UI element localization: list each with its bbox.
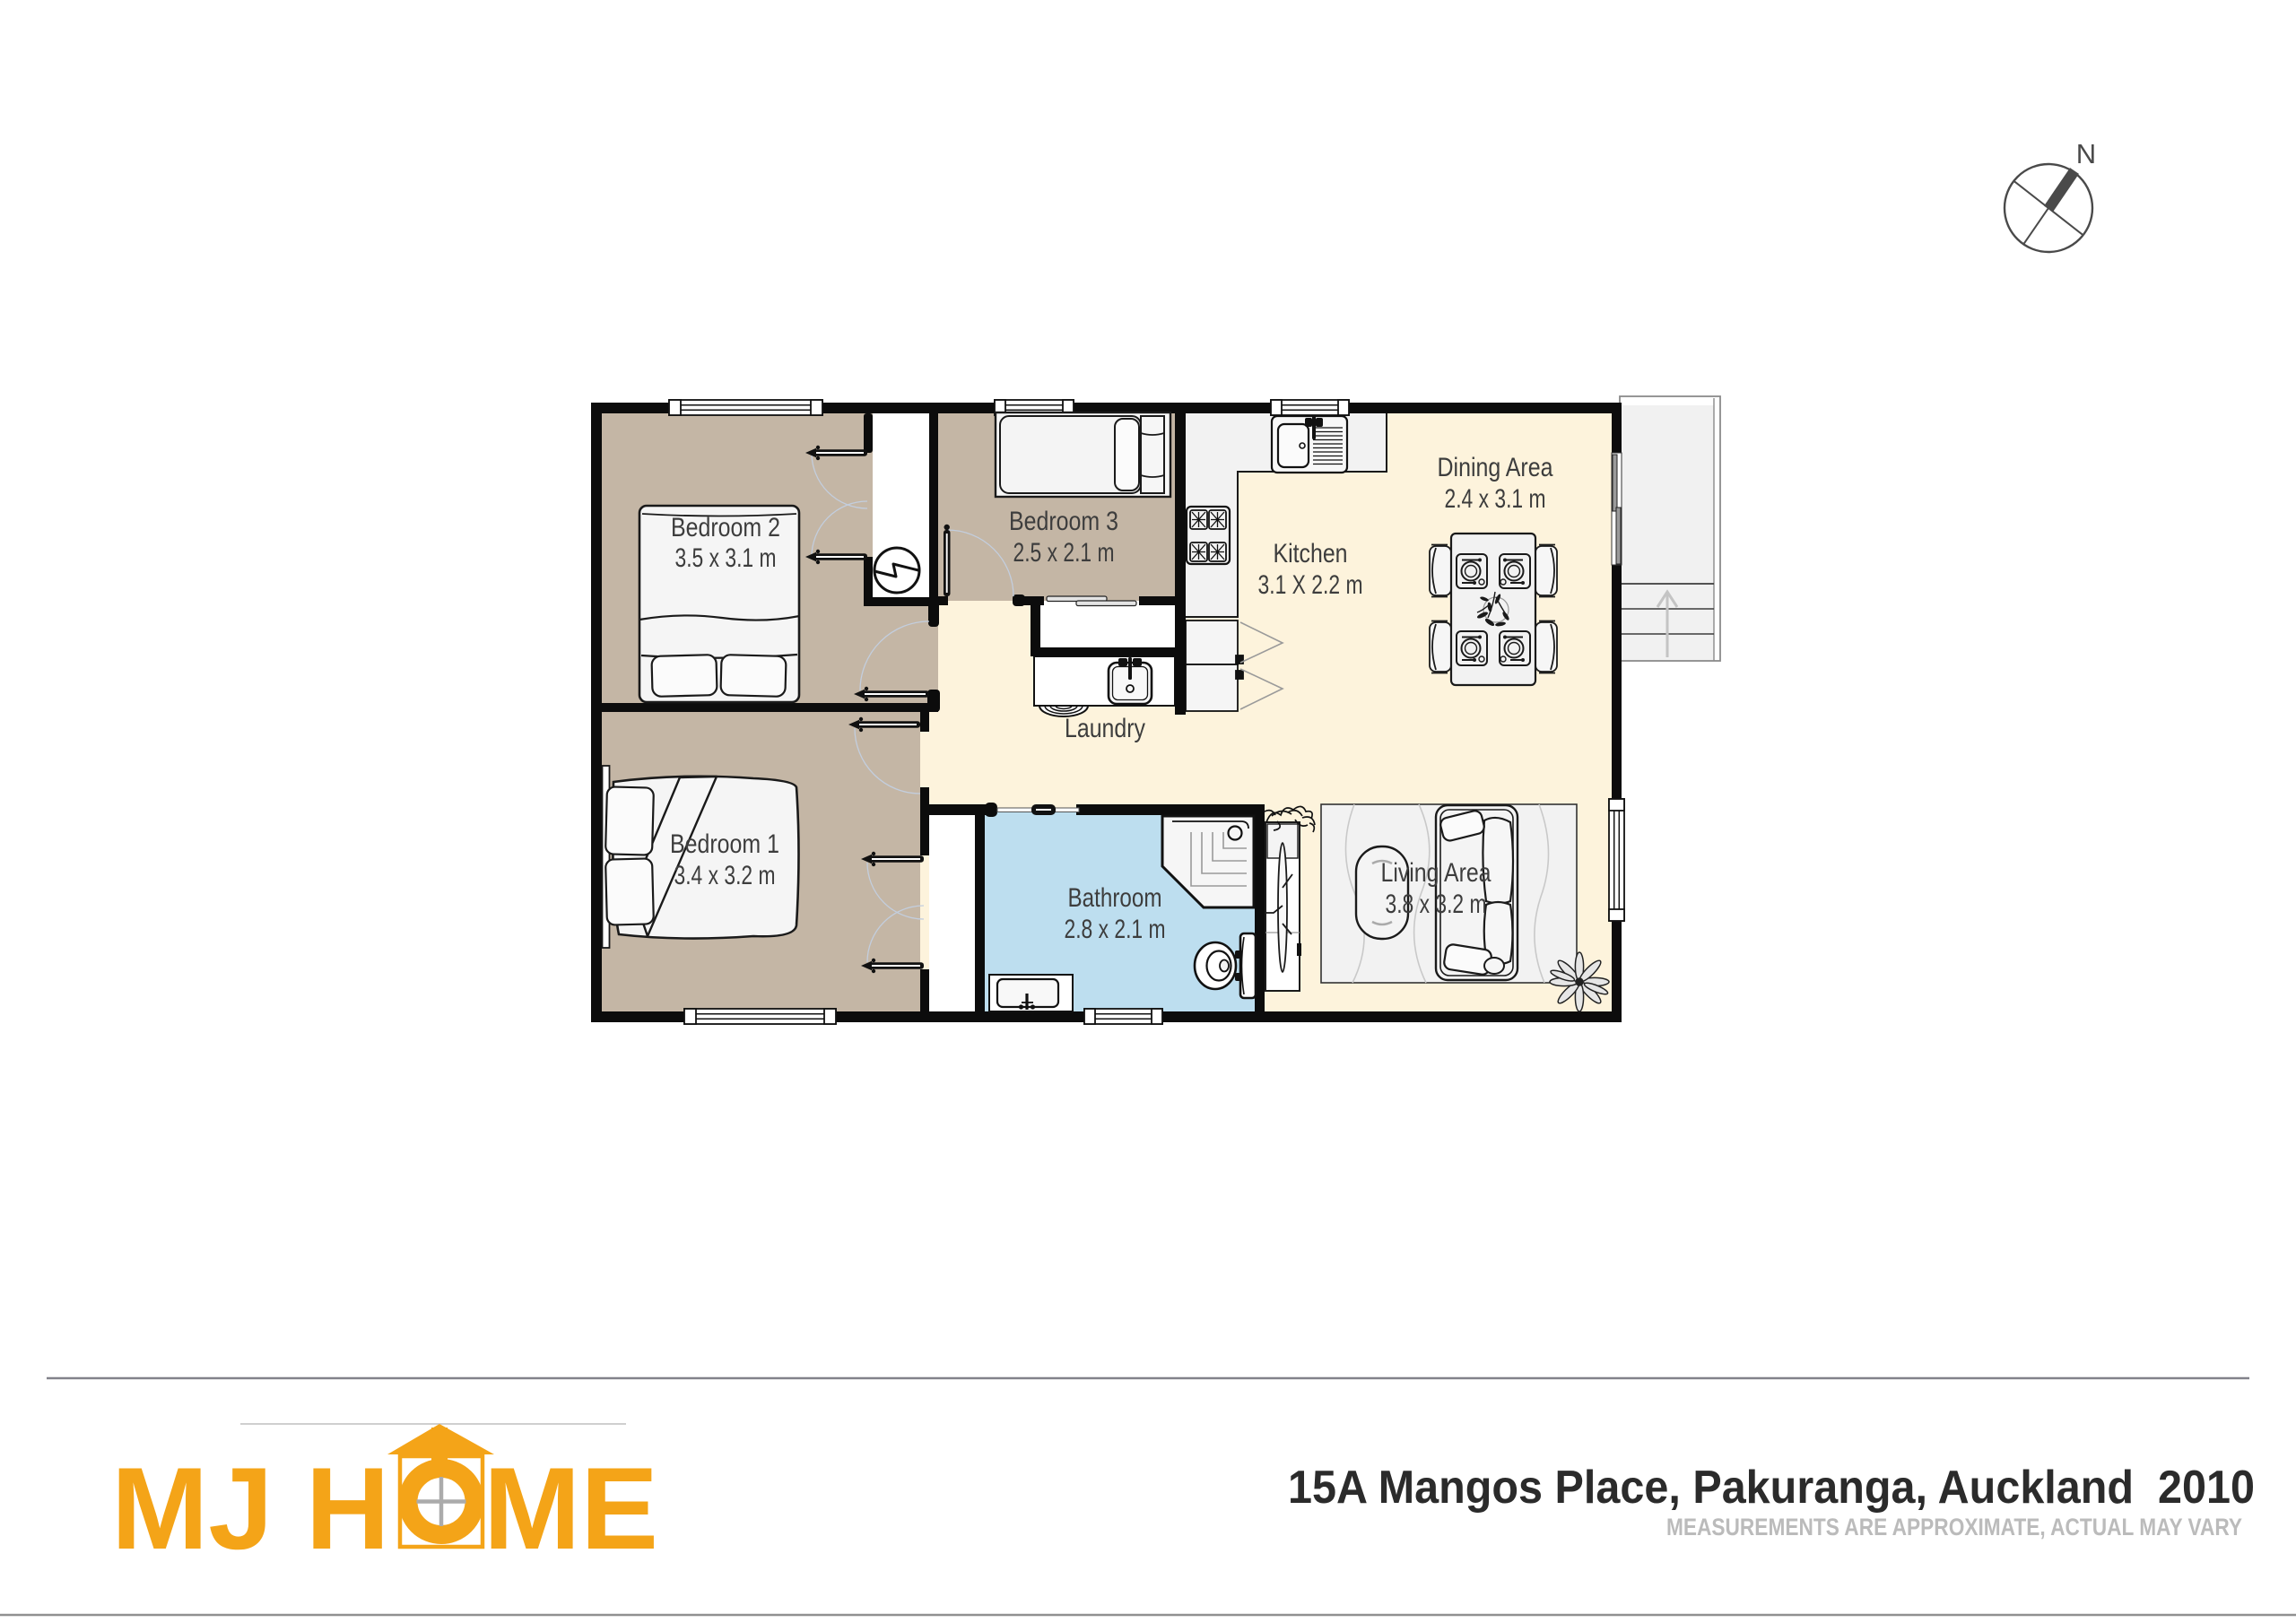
svg-text:N: N — [2076, 138, 2096, 169]
svg-text:Kitchen: Kitchen — [1274, 539, 1348, 568]
svg-text:Dining Area: Dining Area — [1438, 453, 1553, 482]
svg-text:2.5 x 2.1 m: 2.5 x 2.1 m — [1013, 538, 1115, 568]
svg-text:Laundry: Laundry — [1065, 714, 1145, 743]
svg-text:Bedroom 3: Bedroom 3 — [1009, 507, 1118, 536]
svg-text:MJ H: MJ H — [111, 1443, 390, 1574]
svg-text:2.8 x 2.1 m: 2.8 x 2.1 m — [1065, 915, 1166, 944]
svg-text:Bathroom: Bathroom — [1068, 883, 1162, 913]
svg-text:3.1 X 2.2 m: 3.1 X 2.2 m — [1258, 570, 1363, 600]
svg-text:Bedroom 2: Bedroom 2 — [671, 513, 780, 542]
svg-text:MEASUREMENTS ARE APPROXIMATE,: MEASUREMENTS ARE APPROXIMATE, ACTUAL MAY… — [1666, 1514, 2242, 1541]
svg-text:3.4 x 3.2 m: 3.4 x 3.2 m — [674, 861, 776, 890]
svg-text:3.5 x 3.1 m: 3.5 x 3.1 m — [675, 543, 777, 573]
svg-text:15A Mangos Place, Pakuranga, A: 15A Mangos Place, Pakuranga, Auckland 20… — [1288, 1462, 2255, 1514]
svg-text:Bedroom 1: Bedroom 1 — [670, 829, 779, 859]
svg-text:Living Area: Living Area — [1381, 858, 1492, 888]
svg-text:ME: ME — [483, 1443, 658, 1574]
svg-text:2.4 x 3.1 m: 2.4 x 3.1 m — [1445, 484, 1546, 514]
svg-text:3.8 x 3.2 m: 3.8 x 3.2 m — [1386, 890, 1487, 919]
